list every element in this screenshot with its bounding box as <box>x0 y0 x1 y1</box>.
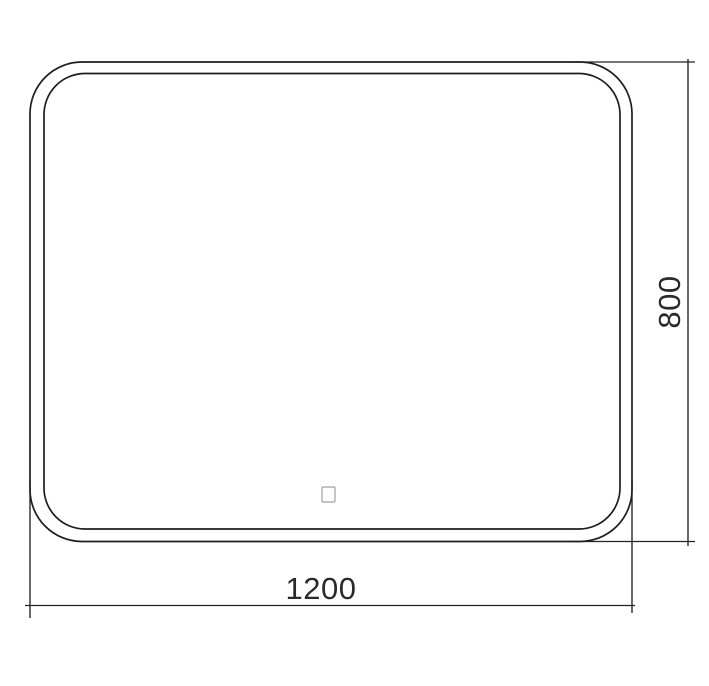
mirror-inner-frame <box>44 74 620 530</box>
drawing-canvas: 800 1200 <box>0 0 709 686</box>
mirror-dimension-drawing: 800 1200 <box>0 0 709 686</box>
height-dimension-label: 800 <box>652 275 687 328</box>
touch-sensor-icon <box>322 487 335 502</box>
width-dimension: 1200 <box>25 480 635 618</box>
mirror-outline-group <box>30 62 632 542</box>
width-dimension-label: 1200 <box>286 571 357 606</box>
mirror-outer-frame <box>30 62 632 542</box>
height-dimension: 800 <box>572 59 695 546</box>
